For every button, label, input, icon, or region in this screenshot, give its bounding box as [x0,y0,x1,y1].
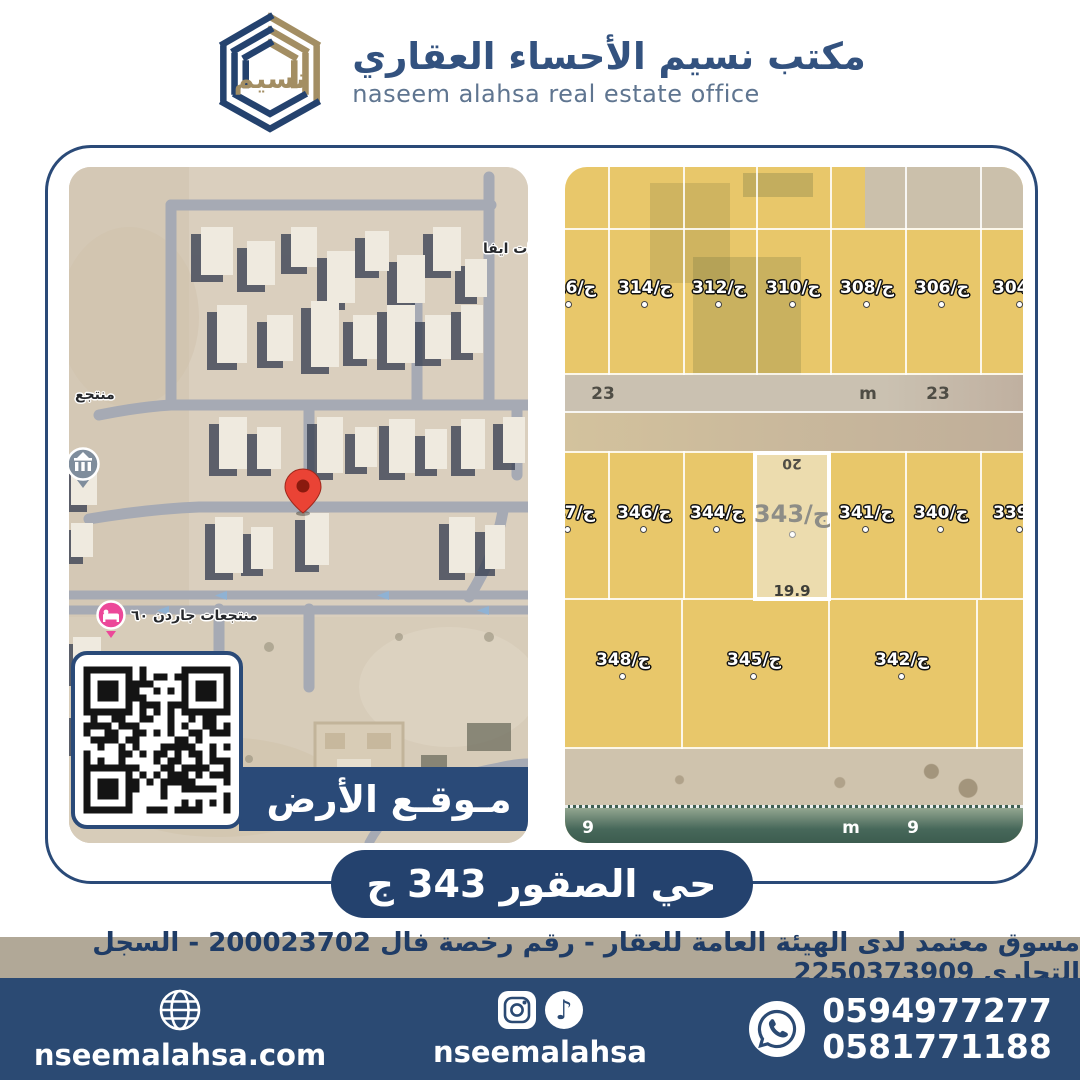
poi-label-garden60: منتجعات جاردن ٦٠ [131,608,258,624]
footer: nseemalahsa.com ♪ nseemalahsa [0,978,1080,1080]
footer-social: ♪ nseemalahsa [360,978,720,1080]
parcel-plan-map: 23 m 23 9 m 9 [565,167,1023,843]
logo-wordmark: نسيم [234,62,306,95]
plot-label: ج/304 [993,278,1023,308]
plot-label: ج/310 [766,278,820,308]
land-location-banner: مـوقـع الأرض [239,767,528,831]
grid-line [608,451,610,600]
plot-label: ج/339 [993,503,1023,533]
district-banner: حي الصقور 343 ج [330,850,752,918]
naseem-hex-logo-icon: نسيم [214,9,326,133]
website-link[interactable]: nseemalahsa.com [34,1038,326,1072]
grid-line [608,167,610,375]
plot-label: ج/347 [565,503,595,533]
sand-area [865,167,1023,228]
grid-line [756,167,758,375]
instagram-icon[interactable] [497,990,537,1030]
grid-line [683,167,685,375]
street-unit-label: m [842,818,860,838]
street-width-label: 23 [926,384,950,404]
plot-label: ج/348 [596,650,650,680]
globe-icon [157,987,203,1033]
qr-code[interactable] [71,651,243,829]
sand-strip [565,413,1023,451]
plot-label: ج/341 [839,503,893,533]
street-width-label: 23 [591,384,615,404]
grid-line [683,451,685,600]
plot-label: ج/345 [727,650,781,680]
poi-label-resort: منتجع [75,387,115,403]
plot-dimension-top: 20 [782,455,801,471]
plot-label: ج/314 [618,278,672,308]
lodging-marker-icon [69,446,102,496]
grid-line [565,373,1023,375]
grid-line [565,228,1023,230]
street-width-label: 9 [907,818,919,838]
phone-number-1[interactable]: 0594977277 [822,993,1052,1029]
satellite-location-map: ات ايفا منتجع منتجعات جاردن ٦٠ [69,167,528,843]
brand-titles: مكتب نسيم الأحساء العقاري naseem alahsa … [352,35,866,108]
social-handle[interactable]: nseemalahsa [433,1035,647,1069]
grid-line [976,600,978,749]
street-23m: 23 m 23 [565,375,1023,413]
plot-dimension-bottom: 19.9 [773,582,810,600]
grid-line [980,167,982,375]
street-9m: 9 m 9 [565,805,1023,843]
grid-line [565,411,1023,413]
plot-label: ج/344 [690,503,744,533]
grid-line [905,167,907,375]
grid-line [681,600,683,749]
sand-strip [565,749,1023,805]
footer-contact: 0594977277 0581771188 [720,978,1080,1080]
office-title-arabic: مكتب نسيم الأحساء العقاري [352,35,866,78]
plot-label: ج/342 [875,650,929,680]
ghost-structure [743,173,813,197]
street-unit-label: m [859,384,877,404]
grid-line [830,167,832,375]
footer-website: nseemalahsa.com [0,978,360,1080]
poi-label-eva: ات ايفا [483,241,528,257]
plot-label: ج/306 [915,278,969,308]
plot-label: ج/308 [840,278,894,308]
plot-label: ج/346 [617,503,671,533]
header: نسيم مكتب نسيم الأحساء العقاري naseem al… [0,8,1080,134]
plot-label: ج/340 [914,503,968,533]
office-title-english: naseem alahsa real estate office [352,80,866,108]
grid-line [905,451,907,600]
location-pin-icon [283,467,323,521]
plot-label: ج/316 [565,278,596,308]
svg-text:♪: ♪ [555,995,572,1026]
plot-label: ج/312 [692,278,746,308]
license-bar: مسوق معتمد لدى الهيئة العامة للعقار - رق… [0,937,1080,978]
real-estate-poster: نسيم مكتب نسيم الأحساء العقاري naseem al… [0,0,1080,1080]
grid-line [828,600,830,749]
grid-line [565,747,1023,749]
maps-frame: ات ايفا منتجع منتجعات جاردن ٦٠ [45,145,1038,884]
phone-number-2[interactable]: 0581771188 [822,1029,1052,1065]
hotel-marker-icon [94,600,128,646]
street-width-label: 9 [582,818,594,838]
whatsapp-icon[interactable] [748,1000,806,1058]
qr-code-pattern [82,665,232,815]
grid-line [980,451,982,600]
tiktok-icon[interactable]: ♪ [544,990,584,1030]
phone-numbers: 0594977277 0581771188 [822,993,1052,1066]
selected-plot-label: ج/343 [754,500,830,538]
